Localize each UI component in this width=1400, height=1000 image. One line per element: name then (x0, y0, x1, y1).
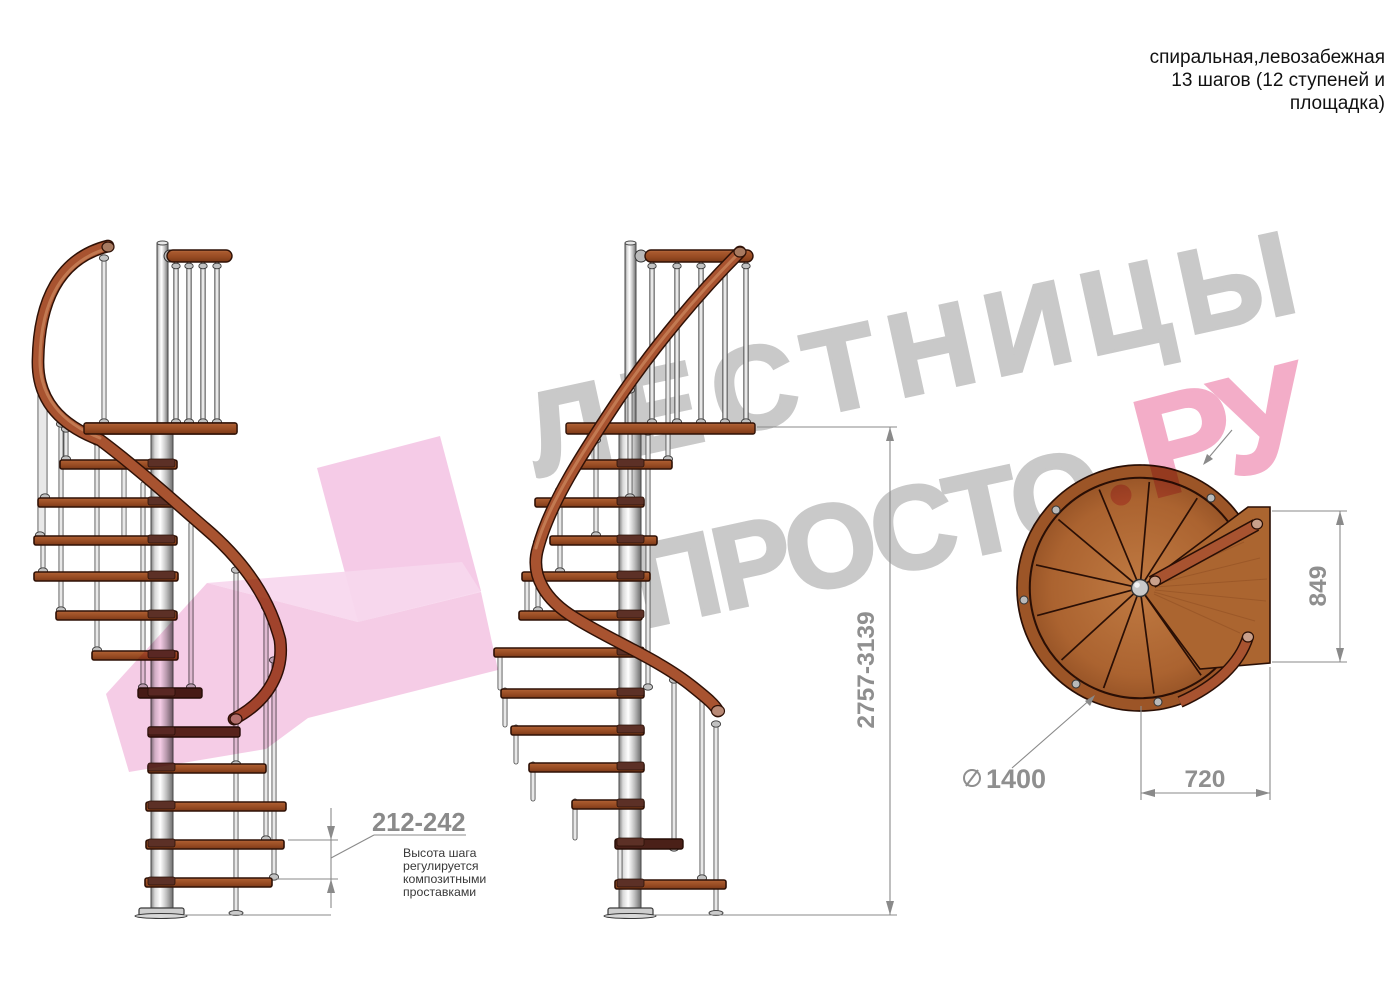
svg-text:212-242: 212-242 (372, 809, 466, 837)
svg-text:2757-3139: 2757-3139 (853, 611, 880, 728)
svg-text:13 шагов (12 ступеней и: 13 шагов (12 ступеней и (1171, 70, 1385, 91)
svg-text:1400: 1400 (986, 764, 1046, 794)
svg-text:композитными: композитными (403, 872, 486, 886)
svg-text:720: 720 (1185, 766, 1226, 793)
svg-text:849: 849 (1305, 566, 1332, 607)
svg-text:спиральная,левозабежная: спиральная,левозабежная (1150, 47, 1385, 68)
svg-text:регулируется: регулируется (403, 859, 479, 873)
svg-text:проставками: проставками (403, 885, 476, 899)
svg-text:Высота шага: Высота шага (403, 846, 477, 860)
svg-text:площадка): площадка) (1290, 93, 1385, 114)
